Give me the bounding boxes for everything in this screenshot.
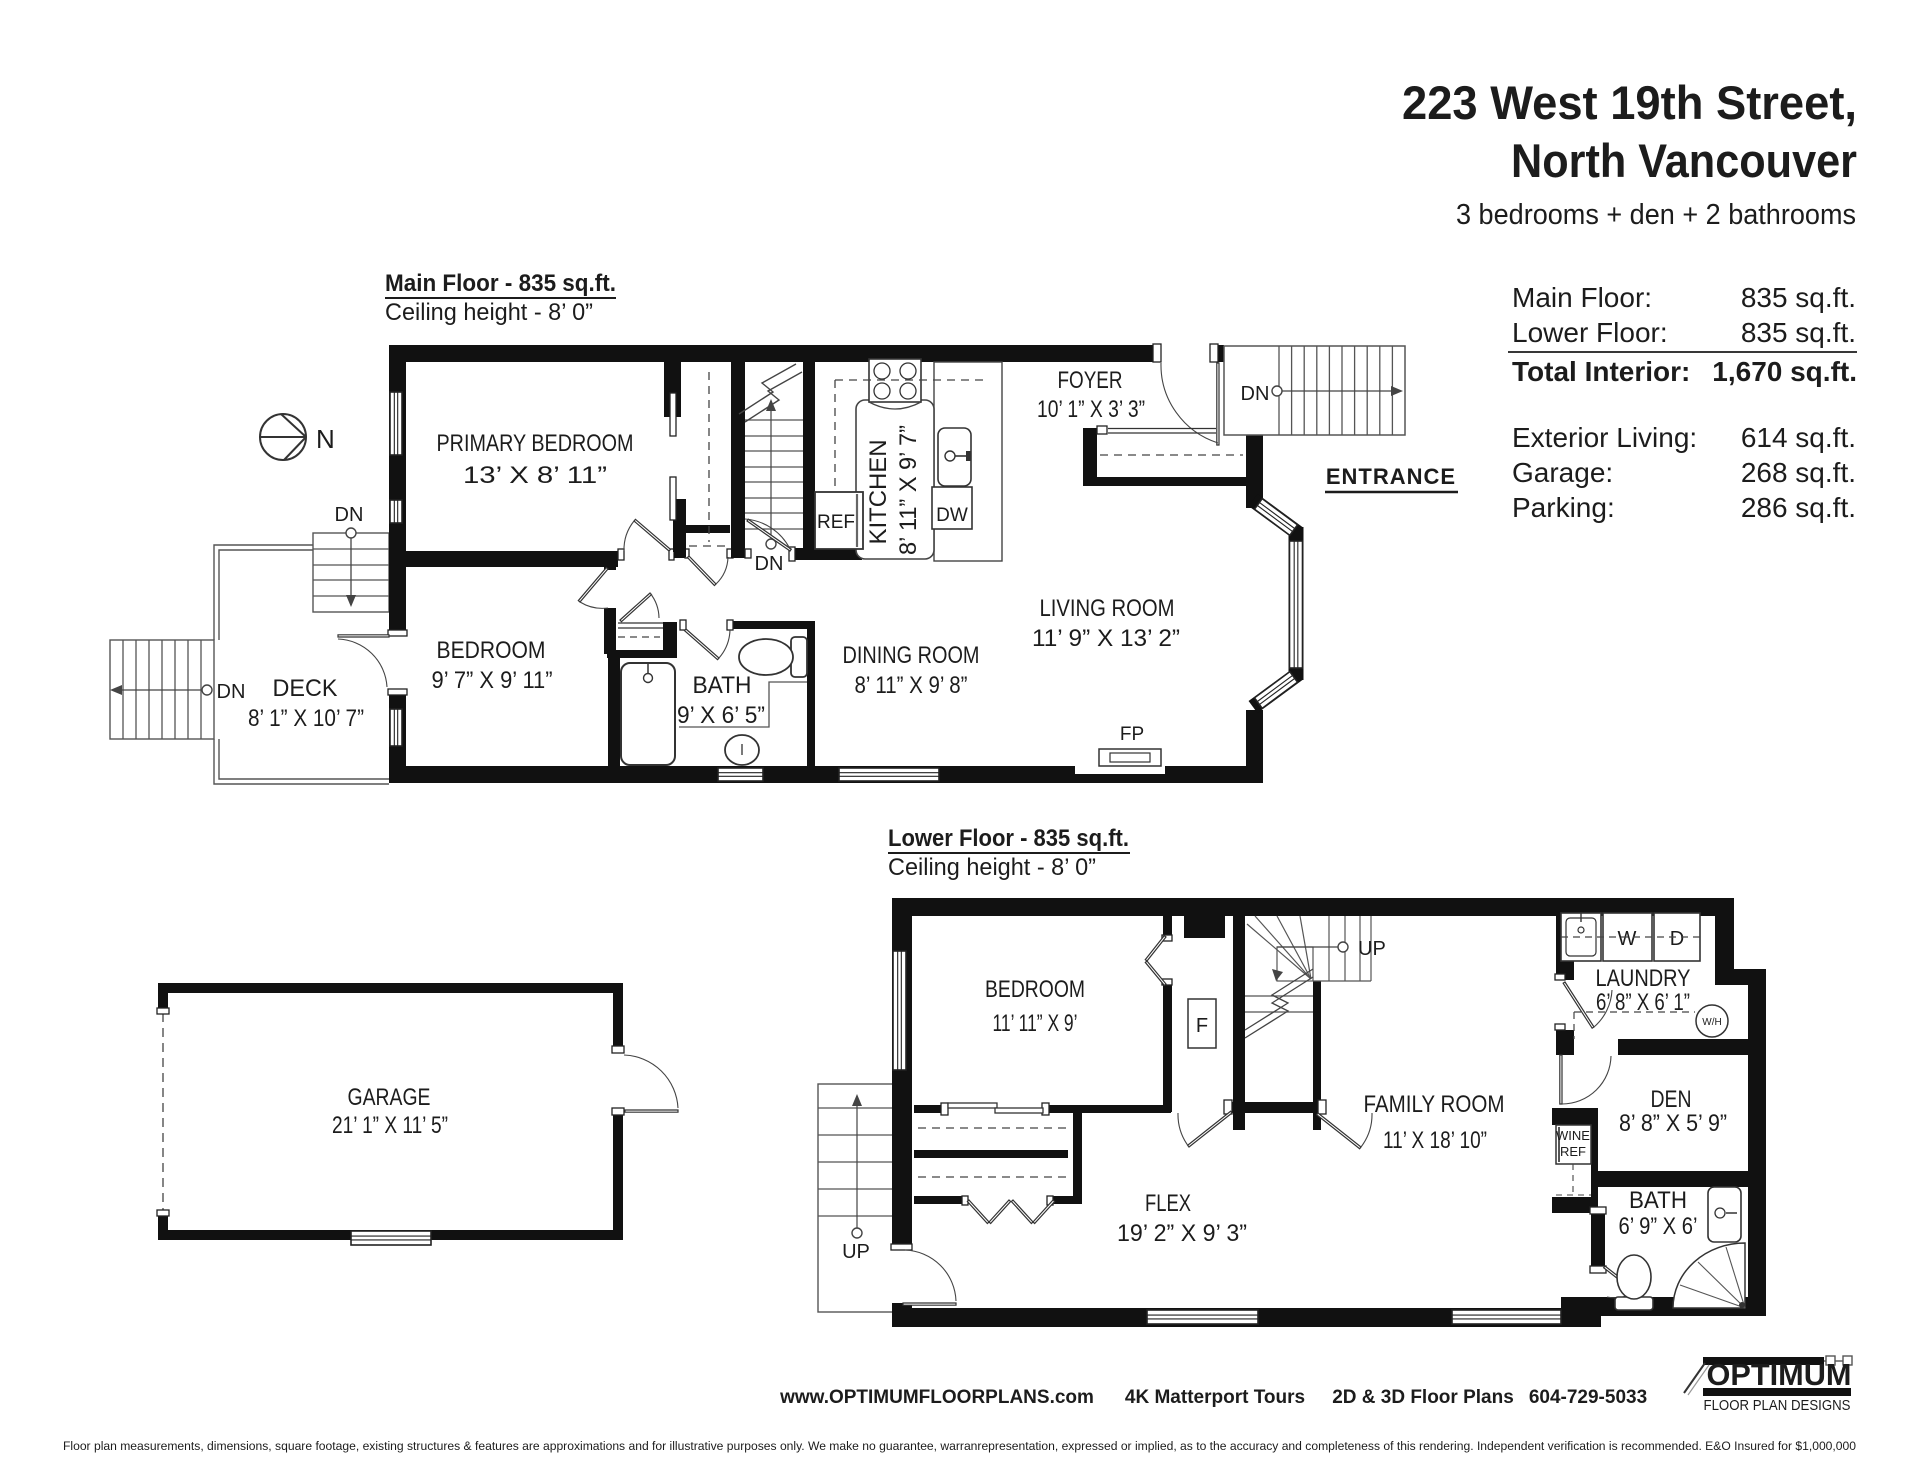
svg-text:WINE: WINE <box>1556 1128 1590 1143</box>
svg-text:BATH: BATH <box>1629 1187 1687 1214</box>
svg-text:11’ 11” X 9’: 11’ 11” X 9’ <box>993 1010 1078 1037</box>
svg-text:10’ 1” X 3’ 3”: 10’ 1” X 3’ 3” <box>1037 396 1145 423</box>
svg-text:DECK: DECK <box>273 675 338 702</box>
svg-text:Parking:: Parking: <box>1512 492 1615 523</box>
svg-text:DN: DN <box>755 553 784 575</box>
svg-text:6’ 8” X 6’ 1”: 6’ 8” X 6’ 1” <box>1596 989 1690 1016</box>
svg-text:www.OPTIMUMFLOORPLANS.com: www.OPTIMUMFLOORPLANS.com <box>779 1387 1094 1408</box>
svg-text:DN: DN <box>335 504 364 526</box>
svg-text:DEN: DEN <box>1651 1086 1692 1113</box>
svg-text:UP: UP <box>842 1241 870 1263</box>
svg-text:223 West 19th Street,: 223 West 19th Street, <box>1402 76 1857 129</box>
svg-text:F: F <box>1196 1015 1208 1037</box>
svg-text:614 sq.ft.: 614 sq.ft. <box>1741 422 1856 453</box>
svg-text:3 bedrooms + den + 2 bathrooms: 3 bedrooms + den + 2 bathrooms <box>1456 199 1856 231</box>
svg-text:268 sq.ft.: 268 sq.ft. <box>1741 457 1856 488</box>
svg-text:KITCHEN: KITCHEN <box>865 440 892 545</box>
svg-text:W/H: W/H <box>1702 1017 1721 1028</box>
svg-text:BEDROOM: BEDROOM <box>437 637 546 664</box>
svg-text:4K Matterport Tours: 4K Matterport Tours <box>1125 1387 1305 1408</box>
svg-text:PRIMARY BEDROOM: PRIMARY BEDROOM <box>437 430 634 457</box>
svg-text:Main Floor - 835 sq.ft.: Main Floor - 835 sq.ft. <box>385 270 616 297</box>
svg-text:8’ 8” X 5’ 9”: 8’ 8” X 5’ 9” <box>1619 1110 1727 1137</box>
svg-text:Ceiling height - 8’ 0”: Ceiling height - 8’ 0” <box>385 299 593 326</box>
svg-text:DINING ROOM: DINING ROOM <box>843 642 980 669</box>
svg-text:GARAGE: GARAGE <box>348 1084 431 1111</box>
svg-text:2D & 3D Floor Plans: 2D & 3D Floor Plans <box>1332 1387 1514 1408</box>
svg-text:N: N <box>316 424 335 454</box>
svg-text:11’ 9” X 13’ 2”: 11’ 9” X 13’ 2” <box>1032 625 1180 652</box>
svg-text:FLOOR PLAN DESIGNS: FLOOR PLAN DESIGNS <box>1704 1397 1851 1414</box>
svg-text:8’ 11” X 9’ 7”: 8’ 11” X 9’ 7” <box>895 425 922 555</box>
svg-text:Exterior Living:: Exterior Living: <box>1512 422 1697 453</box>
svg-text:OPTIMUM: OPTIMUM <box>1707 1357 1852 1392</box>
svg-text:W: W <box>1618 928 1637 950</box>
svg-text:FOYER: FOYER <box>1058 367 1123 394</box>
svg-text:Main Floor:: Main Floor: <box>1512 282 1652 313</box>
svg-text:LIVING ROOM: LIVING ROOM <box>1040 595 1175 622</box>
svg-text:286 sq.ft.: 286 sq.ft. <box>1741 492 1856 523</box>
svg-text:DW: DW <box>936 505 968 526</box>
svg-text:REF: REF <box>1560 1144 1586 1159</box>
svg-text:Lower Floor - 835 sq.ft.: Lower Floor - 835 sq.ft. <box>888 825 1129 852</box>
svg-text:Total Interior:: Total Interior: <box>1512 356 1690 387</box>
svg-text:9’ X 6’ 5”: 9’ X 6’ 5” <box>677 702 765 729</box>
svg-text:Floor plan measurements, dimen: Floor plan measurements, dimensions, squ… <box>63 1439 1856 1453</box>
svg-text:21’ 1” X 11’ 5”: 21’ 1” X 11’ 5” <box>332 1112 448 1139</box>
svg-text:DN: DN <box>1241 383 1270 405</box>
svg-text:FP: FP <box>1120 724 1144 745</box>
svg-text:9’ 7” X 9’ 11”: 9’ 7” X 9’ 11” <box>432 667 553 694</box>
svg-text:Ceiling height - 8’ 0”: Ceiling height - 8’ 0” <box>888 854 1096 881</box>
svg-text:UP: UP <box>1358 938 1386 960</box>
svg-text:BEDROOM: BEDROOM <box>985 976 1085 1003</box>
svg-text:8’ 11” X 9’ 8”: 8’ 11” X 9’ 8” <box>855 672 968 699</box>
svg-text:835 sq.ft.: 835 sq.ft. <box>1741 282 1856 313</box>
svg-text:ENTRANCE: ENTRANCE <box>1326 464 1456 489</box>
svg-text:DN: DN <box>217 681 246 703</box>
svg-text:835 sq.ft.: 835 sq.ft. <box>1741 317 1856 348</box>
svg-text:19’ 2” X 9’ 3”: 19’ 2” X 9’ 3” <box>1117 1220 1247 1247</box>
svg-text:LAUNDRY: LAUNDRY <box>1596 965 1691 992</box>
svg-text:Garage:: Garage: <box>1512 457 1613 488</box>
svg-text:6’ 9” X 6’: 6’ 9” X 6’ <box>1619 1213 1698 1240</box>
svg-text:8’ 1” X 10’ 7”: 8’ 1” X 10’ 7” <box>248 705 364 732</box>
svg-text:1,670 sq.ft.: 1,670 sq.ft. <box>1712 356 1857 387</box>
svg-text:Lower Floor:: Lower Floor: <box>1512 317 1668 348</box>
svg-text:13’ X 8’ 11”: 13’ X 8’ 11” <box>463 462 607 489</box>
svg-text:FLEX: FLEX <box>1145 1190 1191 1217</box>
svg-text:FAMILY ROOM: FAMILY ROOM <box>1364 1091 1505 1118</box>
svg-text:11’ X 18’ 10”: 11’ X 18’ 10” <box>1383 1127 1487 1154</box>
svg-text:D: D <box>1670 928 1684 950</box>
svg-text:BATH: BATH <box>693 672 752 699</box>
svg-text:North Vancouver: North Vancouver <box>1511 134 1857 187</box>
svg-text:604-729-5033: 604-729-5033 <box>1529 1387 1647 1408</box>
svg-text:REF: REF <box>817 512 855 533</box>
